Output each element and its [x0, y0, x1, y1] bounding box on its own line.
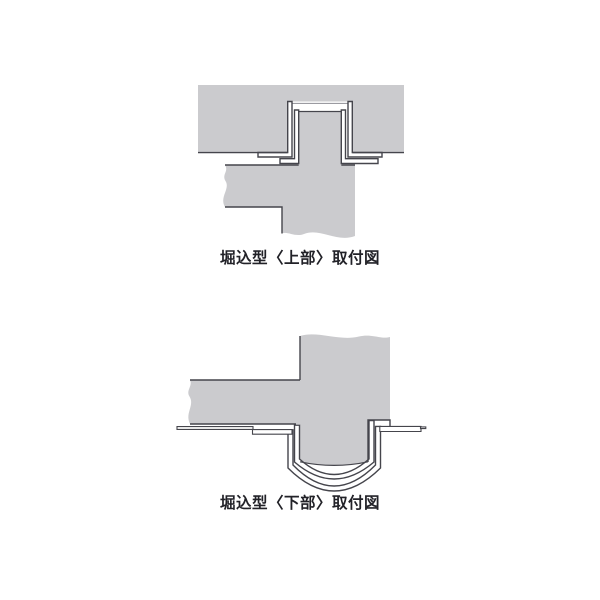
- upper-diagram-caption: 堀込型〈上部〉取付図: [0, 246, 600, 268]
- floor-plate-left: [177, 427, 253, 430]
- upper-installation-diagram: [198, 85, 404, 238]
- technical-diagram-page: 堀込型〈上部〉取付図 堀込型〈下部〉取付図: [0, 0, 600, 600]
- floor-lip-left: [253, 430, 293, 435]
- lower-diagram-caption: 堀込型〈下部〉取付図: [0, 491, 600, 513]
- lower-installation-diagram: [177, 334, 426, 491]
- floor-line-right-tail: [421, 427, 426, 429]
- floor-lip-right: [380, 426, 421, 431]
